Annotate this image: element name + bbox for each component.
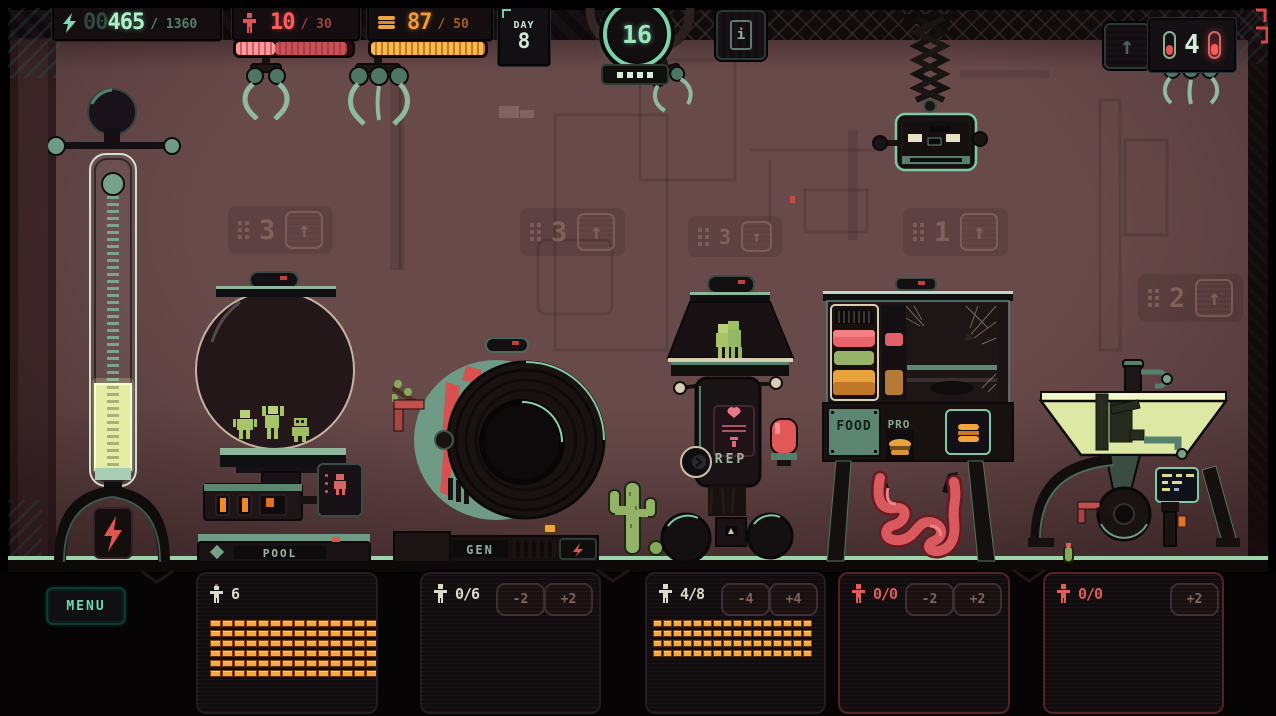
wall-plaque-2: 3 ↑	[520, 208, 625, 256]
person-icon	[659, 584, 672, 603]
food-counter: 87 / 50	[367, 4, 493, 41]
pill-storage-counter: 4	[1148, 18, 1236, 72]
plaque-dots-icon	[698, 228, 709, 246]
person-icon	[852, 584, 865, 603]
remove-workers-button[interactable]: -2	[905, 583, 954, 616]
burger-icon	[889, 439, 911, 455]
panel-population[interactable]: 6	[196, 572, 378, 714]
food-processor-machine[interactable]: FOOD PRO	[818, 278, 1018, 568]
energy-counter: 00 465 / 1360	[52, 4, 222, 41]
food-max: / 50	[438, 17, 469, 32]
pill-count: 4	[1184, 30, 1200, 60]
lightning-icon	[63, 13, 77, 33]
population-value: 10	[270, 10, 295, 35]
plaque-dots-icon	[913, 223, 924, 241]
hanging-claw-large	[346, 52, 412, 130]
plaque-count: 2	[1169, 283, 1185, 314]
chain-link	[924, 100, 936, 112]
pro-label: PRO	[888, 418, 911, 431]
add-workers-button[interactable]: +4	[769, 583, 818, 616]
power-gauge-machine[interactable]	[48, 84, 184, 562]
panel-gap-chevron	[1012, 569, 1046, 583]
upgrade-arrow-icon: ↑	[741, 221, 772, 252]
food-label: FOOD	[836, 419, 871, 434]
wall-plaque-1: 3 ↑	[228, 206, 333, 254]
robot-mouth	[928, 138, 941, 145]
upgrade-button[interactable]: ↑	[1104, 23, 1150, 69]
game-screen: 3 ↑ 3 ↑ 3 ↑ 1 ↑ 2 ↑	[0, 0, 1276, 716]
worker-count: 0/0	[873, 585, 897, 603]
info-button[interactable]: i	[716, 10, 766, 60]
panel-gap-chevron	[596, 569, 630, 583]
day-value: 8	[518, 31, 531, 51]
plaque-dots-icon	[530, 223, 541, 241]
capsule-icon	[1208, 31, 1221, 59]
tray-green	[834, 351, 874, 365]
panel-workers-4[interactable]: 0/0 +2	[1043, 572, 1224, 714]
panel-workers-1[interactable]: 0/6 -2 +2	[420, 572, 601, 714]
capsule-icon	[1163, 31, 1176, 59]
population-bar	[233, 39, 355, 58]
food-bar	[368, 39, 488, 58]
pool-machine[interactable]: POOL	[182, 262, 402, 564]
person-icon	[243, 13, 256, 33]
upgrade-arrow-icon: ↑	[577, 213, 615, 251]
population-count: 6	[231, 585, 239, 603]
red-handle	[394, 400, 424, 409]
energy-max: / 1360	[150, 17, 197, 32]
menu-button[interactable]: MENU	[46, 587, 126, 625]
wall-plaque-3: 3 ↑	[688, 216, 782, 257]
leg	[827, 461, 851, 561]
remove-workers-button[interactable]: -4	[721, 583, 770, 616]
food-bar-fill	[371, 42, 485, 55]
worker-count: 0/0	[1078, 585, 1102, 603]
worker-count: 0/6	[455, 585, 479, 603]
add-workers-button[interactable]: +2	[953, 583, 1002, 616]
cycle-counter: 16	[603, 0, 671, 68]
food-storage-rows	[210, 620, 378, 680]
robot-eye-right	[946, 134, 960, 142]
pool-screen	[318, 464, 362, 516]
wall-plaque-5: 2 ↑	[1138, 274, 1243, 322]
person-icon	[434, 584, 447, 603]
small-cactus	[1064, 546, 1073, 562]
population-bar-rest	[275, 42, 347, 55]
rep-label: REP	[715, 452, 747, 467]
food-value: 87	[407, 10, 432, 35]
red-capsule	[771, 419, 797, 454]
cycle-value: 16	[622, 20, 652, 49]
panel-workers-2[interactable]: 4/8 -4 +4	[645, 572, 826, 714]
plaque-count: 3	[259, 215, 275, 246]
pool-label: POOL	[263, 547, 298, 560]
corner-decoration	[8, 500, 42, 560]
rep-figures	[716, 321, 742, 358]
plaque-count: 3	[719, 225, 731, 249]
hanging-claw-small	[238, 54, 296, 120]
panel-workers-3[interactable]: 0/0 -2 +2	[838, 572, 1010, 714]
reproduction-machine[interactable]: REP	[646, 266, 818, 566]
info-icon: i	[730, 20, 752, 50]
person-icon	[1057, 584, 1070, 603]
add-workers-button[interactable]: +2	[1170, 583, 1219, 616]
upgrade-arrow-icon: ↑	[960, 213, 998, 251]
generator-wheel-machine[interactable]: GEN	[392, 338, 616, 566]
plaque-dots-icon	[1148, 289, 1159, 307]
person-icon	[210, 584, 223, 603]
plaque-dots-icon	[238, 221, 249, 239]
food-storage-rows	[653, 620, 812, 660]
plaque-count: 1	[934, 217, 950, 248]
hopper-machine[interactable]	[1026, 342, 1242, 566]
day-badge: DAY 8	[498, 5, 550, 66]
up-arrow-icon: ↑	[1120, 32, 1134, 60]
robot-eye-left	[908, 134, 922, 142]
hopper-screen	[1156, 468, 1198, 502]
population-bar-fill	[236, 42, 275, 55]
wall-plaque-4: 1 ↑	[903, 208, 1008, 256]
add-workers-button[interactable]: +2	[544, 583, 593, 616]
panel-gap-chevron	[140, 570, 174, 584]
population-counter: 10 / 30	[232, 4, 360, 41]
population-max: / 30	[301, 17, 332, 32]
plaque-count: 3	[551, 217, 567, 248]
cycle-dots	[601, 64, 669, 85]
gen-label: GEN	[466, 543, 494, 557]
leg	[968, 461, 995, 561]
rep-weight-right	[748, 514, 792, 558]
worker-count: 4/8	[680, 585, 704, 603]
overseer-robot	[872, 2, 988, 180]
burger-glyph	[958, 424, 979, 442]
energy-value: 465	[108, 10, 145, 35]
upgrade-arrow-icon: ↑	[1195, 279, 1233, 317]
burger-icon	[378, 16, 395, 30]
remove-workers-button[interactable]: -2	[496, 583, 545, 616]
energy-pad: 00	[83, 10, 108, 35]
upgrade-arrow-icon: ↑	[285, 211, 323, 249]
rep-weight-left	[662, 514, 710, 562]
